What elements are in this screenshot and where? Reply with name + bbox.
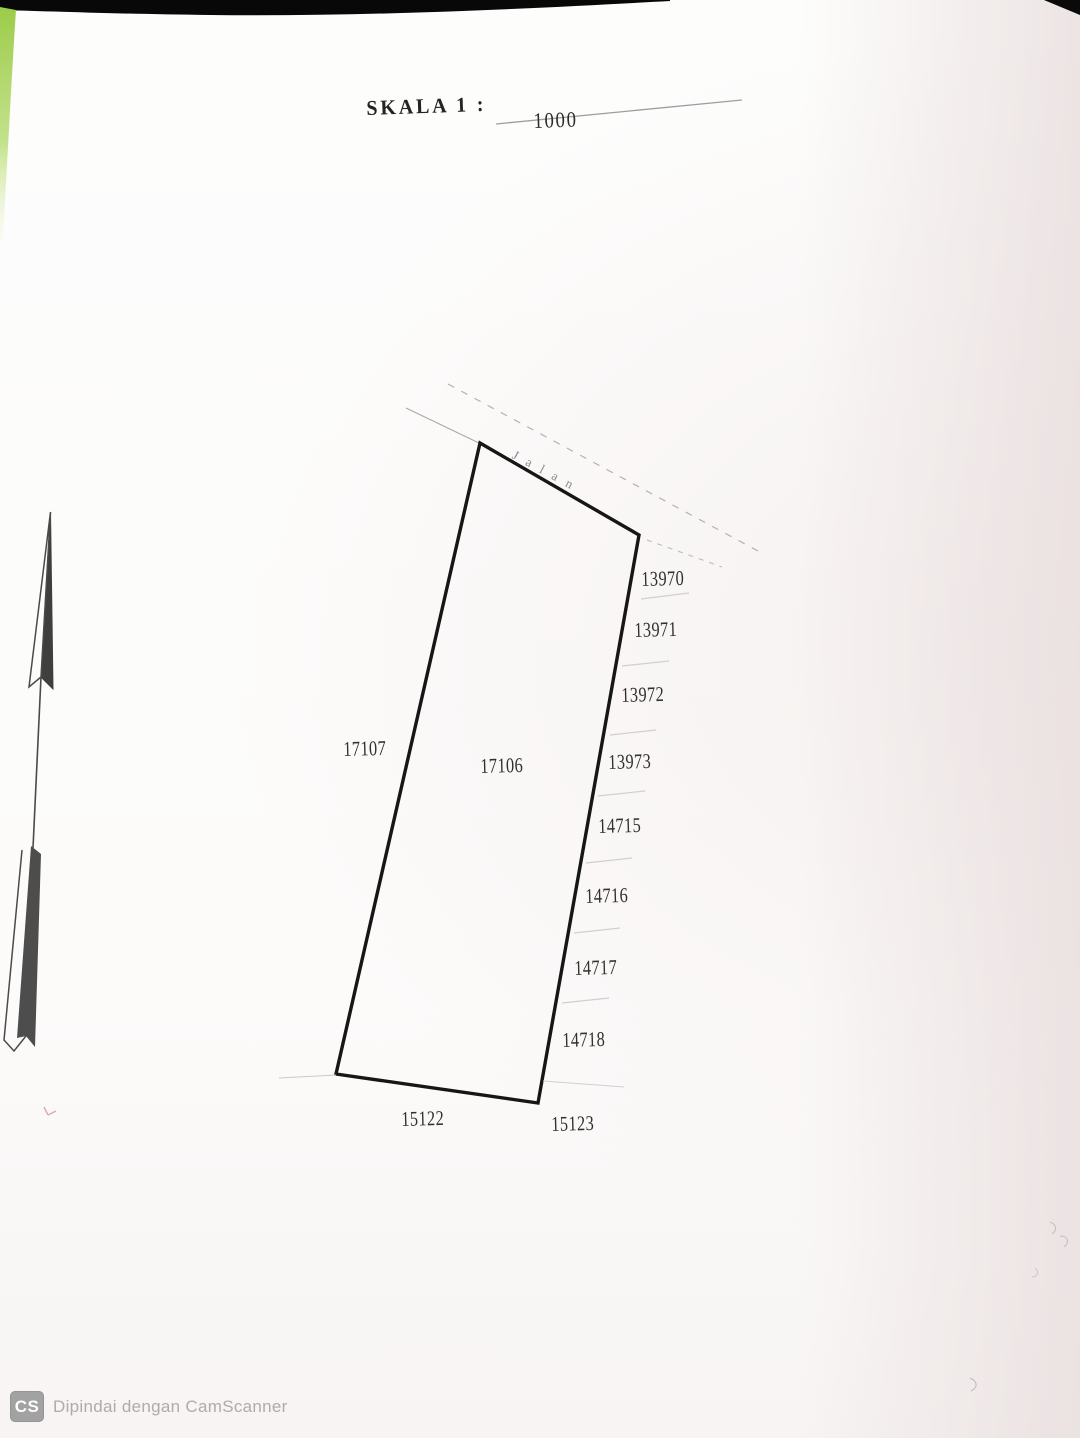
parcel-number-right: 14715 — [598, 815, 641, 837]
north-arrow-icon — [4, 512, 53, 1051]
parcel-boundary-ticks — [562, 593, 689, 1003]
boundary-extension-left — [279, 1075, 336, 1078]
parcel-number-right: 13972 — [621, 684, 664, 706]
scan-green-corner — [0, 7, 16, 252]
parcel-number-right: 14718 — [562, 1029, 605, 1051]
scale-value: 1000 — [533, 106, 578, 134]
scanned-document: SKALA 1 : 1000 Jalan 17106 17107 13970 1… — [0, 0, 1080, 1438]
parcel-number-right: 14717 — [574, 957, 617, 979]
map-drawing — [0, 0, 1080, 1438]
parcel-number-main: 17106 — [480, 755, 523, 777]
road-edge-dashed — [448, 384, 758, 551]
scale-label: SKALA 1 : — [366, 92, 487, 121]
scan-attribution: Dipindai dengan CamScanner — [53, 1397, 288, 1417]
parcel-number-right: 13970 — [641, 568, 684, 590]
parcel-number-right: 13973 — [608, 751, 651, 773]
parcel-number-right: 13971 — [634, 619, 677, 641]
road-edge-solid — [406, 408, 479, 443]
camscanner-badge-icon: CS — [10, 1391, 44, 1422]
parcel-number-bottom: 15122 — [401, 1108, 444, 1130]
camscanner-footer: CS Dipindai dengan CamScanner — [10, 1391, 288, 1422]
parcel-number-bottom: 15123 — [551, 1113, 594, 1135]
boundary-extension-right — [543, 1081, 624, 1087]
parcel-number-left: 17107 — [343, 738, 386, 760]
paper-noise-marks — [44, 1107, 1067, 1391]
scan-edge-top — [0, 0, 670, 15]
road-edge-continuation — [647, 540, 722, 567]
parcel-number-right: 14716 — [585, 885, 628, 907]
scan-corner-top-right — [1044, 0, 1080, 15]
